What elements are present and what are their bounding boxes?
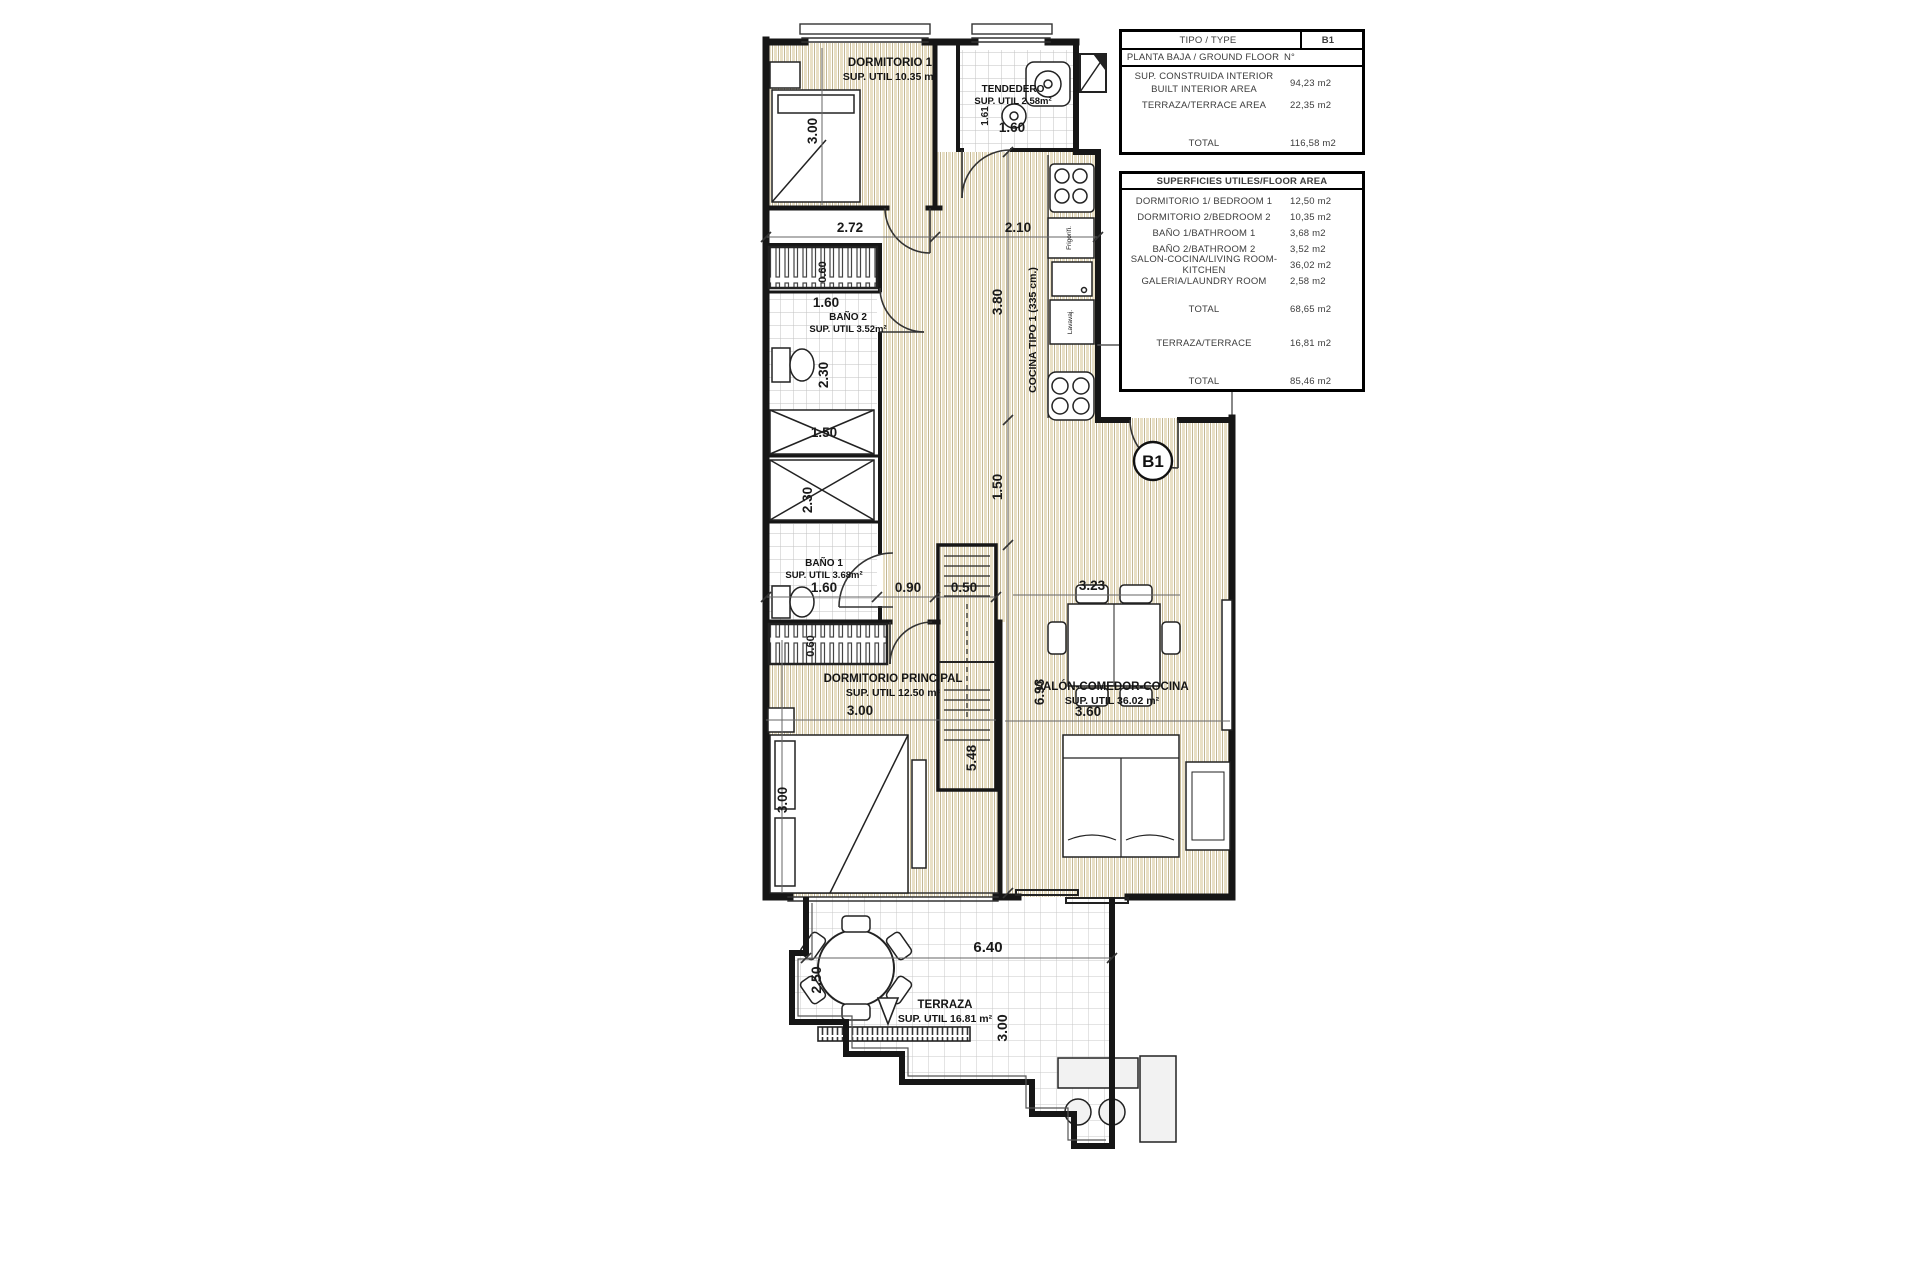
construida-value: 94,23 m2 (1286, 78, 1362, 89)
dim-closetb-060: 0.60 (805, 635, 817, 656)
table-row-tipo: TIPO / TYPE B1 (1122, 32, 1362, 48)
table-row-total: TOTAL 116,58 m2 (1122, 136, 1362, 150)
bed-principal (768, 708, 926, 893)
total2-label: TOTAL (1122, 376, 1286, 387)
table-row: DORMITORIO 2/BEDROOM 2 10,35 m2 (1122, 210, 1362, 224)
row-value: 3,68 m2 (1286, 228, 1362, 239)
unit-badge: B1 (1134, 442, 1172, 480)
row-value: 2,58 m2 (1286, 276, 1362, 287)
room-label-bano2: BAÑO 2 (829, 310, 867, 323)
closet-b (769, 624, 887, 664)
terraza-area-label: TERRAZA/TERRACE AREA (1122, 100, 1286, 111)
dim-tend-161: 1.61 (980, 106, 991, 126)
dim-dp-300h: 3.00 (847, 703, 873, 718)
floor-plan-drawing: DORMITORIO 1 SUP. UTIL 10.35 m² TENDEDER… (0, 0, 1920, 1280)
terraza-label: TERRAZA/TERRACE (1122, 338, 1286, 349)
row-label: BAÑO 1/BATHROOM 1 (1122, 228, 1286, 239)
tipo-value: B1 (1294, 35, 1362, 46)
room-area-dormitorio1: SUP. UTIL 10.35 m² (843, 71, 938, 83)
planta-value: N° (1284, 52, 1362, 63)
floor-plan-sheet: DORMITORIO 1 SUP. UTIL 10.35 m² TENDEDER… (0, 0, 1920, 1280)
table-row-total2: TOTAL 85,46 m2 (1122, 374, 1362, 388)
total-value: 116,58 m2 (1286, 138, 1362, 149)
dim-dining-323: 3.23 (1079, 578, 1106, 593)
dim-shower-150: 1.50 (811, 425, 837, 440)
row-label: BAÑO 2/BATHROOM 2 (1122, 244, 1286, 255)
row-value: 3,52 m2 (1286, 244, 1362, 255)
appliance-label-dishwasher: Lavavaj. (1067, 310, 1074, 334)
row-value: 10,35 m2 (1286, 212, 1362, 223)
dim-terr-640: 6.40 (973, 939, 1002, 956)
table-row-terraza-area: TERRAZA/TERRACE AREA 22,35 m2 (1122, 98, 1362, 112)
dim-bano1-230: 2.30 (800, 487, 815, 513)
row-value: 36,02 m2 (1286, 260, 1362, 271)
construida-label-2: BUILT INTERIOR AREA (1151, 84, 1257, 95)
dim-salon-548: 5.48 (964, 744, 979, 771)
dim-dorm1-300: 3.00 (805, 118, 820, 144)
terraza-area-value: 22,35 m2 (1286, 100, 1362, 111)
planta-label: PLANTA BAJA / GROUND FLOOR (1122, 52, 1284, 63)
construida-label-1: SUP. CONSTRUIDA INTERIOR (1135, 71, 1274, 82)
room-label-cocina: COCINA TIPO 1 (335 cm.) (1027, 267, 1039, 393)
total-label: TOTAL (1122, 138, 1286, 149)
total1-label: TOTAL (1122, 304, 1286, 315)
terrace-grille (818, 1027, 970, 1041)
dim-bano1-160: 1.60 (811, 580, 837, 595)
row-label: DORMITORIO 2/BEDROOM 2 (1122, 212, 1286, 223)
dim-closeta-060: 0.60 (817, 261, 829, 282)
floor-area-table: SUPERFICIES UTILES/FLOOR AREA DORMITORIO… (1119, 171, 1365, 392)
room-area-dormitorio-principal: SUP. UTIL 12.50 m² (846, 687, 941, 699)
total1-value: 68,65 m2 (1286, 304, 1362, 315)
room-label-dormitorio1: DORMITORIO 1 (848, 57, 933, 69)
table-row-terraza: TERRAZA/TERRACE 16,81 m2 (1122, 336, 1362, 350)
table-row-construida: SUP. CONSTRUIDA INTERIOR BUILT INTERIOR … (1122, 68, 1362, 98)
appliance-label-fridge: Frigorífi. (1066, 226, 1073, 250)
tipo-label: TIPO / TYPE (1122, 35, 1294, 46)
table-row-total1: TOTAL 68,65 m2 (1122, 302, 1362, 316)
room-label-dormitorio-principal: DORMITORIO PRINCIPAL (824, 673, 963, 685)
room-area-terraza: SUP. UTIL 16.81 m² (898, 1013, 993, 1025)
table-row: SALON-COCINA/LIVING ROOM-KITCHEN 36,02 m… (1122, 258, 1362, 272)
row-label: DORMITORIO 1/ BEDROOM 1 (1122, 196, 1286, 207)
dim-272: 2.72 (837, 220, 863, 235)
dim-090: 0.90 (895, 580, 921, 595)
dim-bano2-160: 1.60 (813, 295, 839, 310)
kitchen-appliances (1048, 155, 1094, 420)
dim-210: 2.10 (1005, 220, 1031, 235)
room-label-terraza: TERRAZA (918, 999, 973, 1011)
type-summary-table: TIPO / TYPE B1 PLANTA BAJA / GROUND FLOO… (1119, 29, 1365, 155)
unit-badge-label: B1 (1142, 452, 1164, 471)
room-area-bano2: SUP. UTIL 3.52m² (809, 324, 886, 335)
dim-pass-150: 1.50 (990, 474, 1005, 500)
dim-kitchen-380: 3.80 (990, 289, 1005, 315)
row-label: GALERIA/LAUNDRY ROOM (1122, 276, 1286, 287)
room-label-bano1: BAÑO 1 (805, 556, 843, 569)
shower-box (770, 460, 874, 520)
total2-value: 85,46 m2 (1286, 376, 1362, 387)
terraza-value: 16,81 m2 (1286, 338, 1362, 349)
room-area-tendedero: SUP. UTIL 2.58m² (974, 96, 1051, 107)
table-row: DORMITORIO 1/ BEDROOM 1 12,50 m2 (1122, 194, 1362, 208)
dim-bano2-230: 2.30 (816, 362, 831, 388)
table-header-superficies: SUPERFICIES UTILES/FLOOR AREA (1122, 174, 1362, 190)
room-label-tendedero: TENDEDERO (982, 84, 1045, 95)
table-row: BAÑO 1/BATHROOM 1 3,68 m2 (1122, 226, 1362, 240)
room-label-salon: SALÓN-COMEDOR-COCINA (1035, 680, 1188, 693)
table-row: GALERIA/LAUNDRY ROOM 2,58 m2 (1122, 274, 1362, 288)
row-label: SALON-COCINA/LIVING ROOM-KITCHEN (1122, 254, 1286, 276)
table-row-planta: PLANTA BAJA / GROUND FLOOR N° (1122, 49, 1362, 65)
dim-dp-300v: 3.00 (775, 787, 790, 813)
superficies-header: SUPERFICIES UTILES/FLOOR AREA (1122, 176, 1362, 187)
dim-tend-160: 1.60 (999, 120, 1025, 135)
dim-050: 0.50 (951, 580, 977, 595)
row-value: 12,50 m2 (1286, 196, 1362, 207)
dim-salon-693: 6.93 (1032, 678, 1047, 705)
dim-salon-360: 3.60 (1075, 704, 1101, 719)
dim-terr-250: 2.50 (808, 966, 824, 993)
shaft (1080, 54, 1106, 92)
dim-terr-300: 3.00 (994, 1014, 1010, 1041)
